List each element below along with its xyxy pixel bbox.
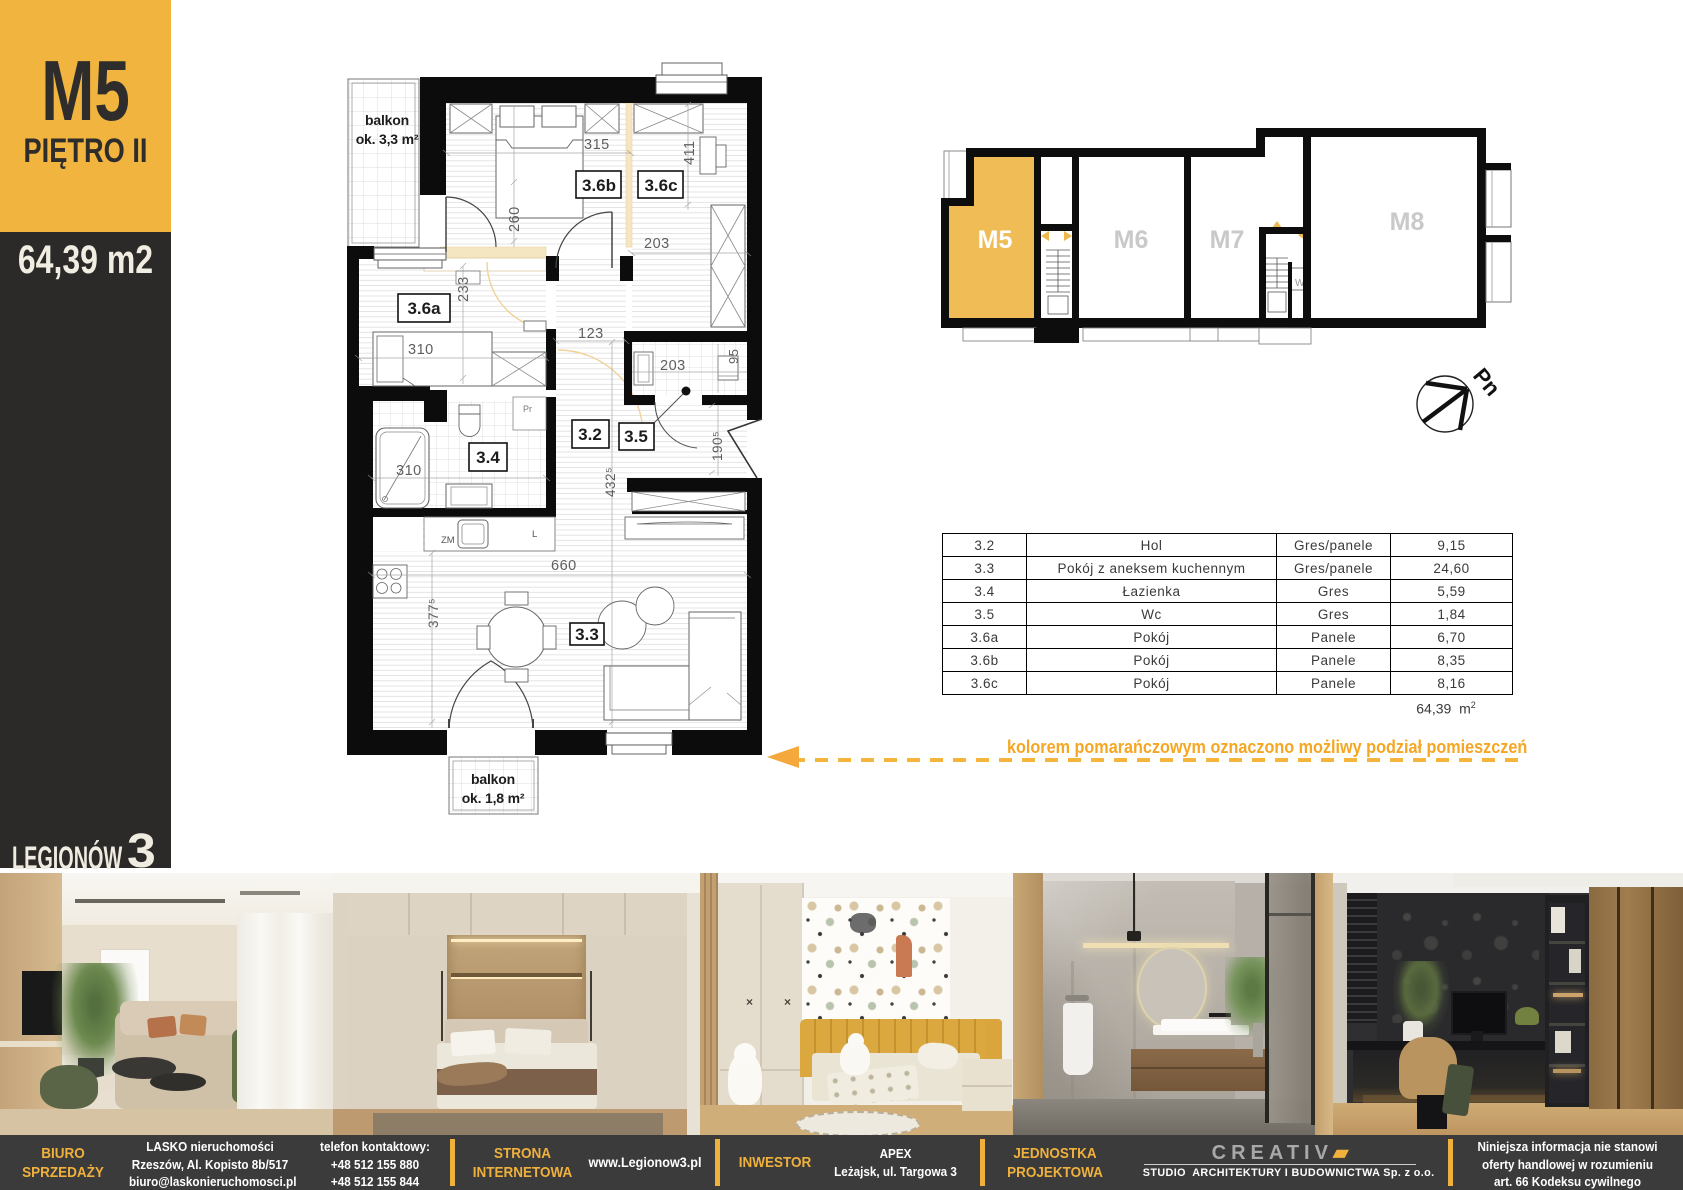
svg-text:L: L — [532, 529, 537, 540]
svg-text:balkon: balkon — [471, 771, 515, 787]
svg-text:ok. 3,3 m²: ok. 3,3 m² — [356, 131, 419, 147]
svg-text:M5: M5 — [978, 226, 1013, 254]
svg-text:M8: M8 — [1390, 208, 1425, 236]
svg-text:432⁵: 432⁵ — [603, 467, 618, 497]
svg-text:123: 123 — [578, 326, 604, 342]
svg-text:3.2: 3.2 — [578, 425, 602, 444]
svg-text:411: 411 — [682, 140, 698, 165]
svg-text:3.6c: 3.6c — [644, 176, 677, 195]
svg-text:190⁵: 190⁵ — [710, 431, 725, 461]
svg-text:ZM: ZM — [441, 535, 455, 546]
svg-text:377⁵: 377⁵ — [426, 598, 441, 628]
svg-text:M7: M7 — [1210, 226, 1245, 254]
svg-text:660: 660 — [551, 558, 577, 574]
svg-text:3.4: 3.4 — [476, 448, 500, 467]
svg-text:3.6b: 3.6b — [582, 176, 616, 195]
svg-text:233: 233 — [456, 276, 472, 302]
svg-text:ok. 1,8 m²: ok. 1,8 m² — [462, 790, 525, 806]
svg-text:M6: M6 — [1114, 226, 1149, 254]
svg-text:Pr: Pr — [523, 404, 532, 414]
svg-text:315: 315 — [584, 137, 610, 153]
svg-text:3.3: 3.3 — [575, 625, 599, 644]
svg-text:95: 95 — [726, 349, 741, 364]
svg-text:balkon: balkon — [365, 112, 409, 128]
svg-text:3.5: 3.5 — [624, 427, 648, 446]
svg-text:203: 203 — [660, 358, 686, 374]
svg-text:3.6a: 3.6a — [407, 299, 441, 318]
svg-text:Pn: Pn — [1468, 363, 1505, 401]
svg-text:260: 260 — [507, 206, 523, 232]
svg-text:203: 203 — [644, 236, 670, 252]
svg-text:310: 310 — [408, 342, 434, 358]
svg-text:310: 310 — [396, 463, 422, 479]
